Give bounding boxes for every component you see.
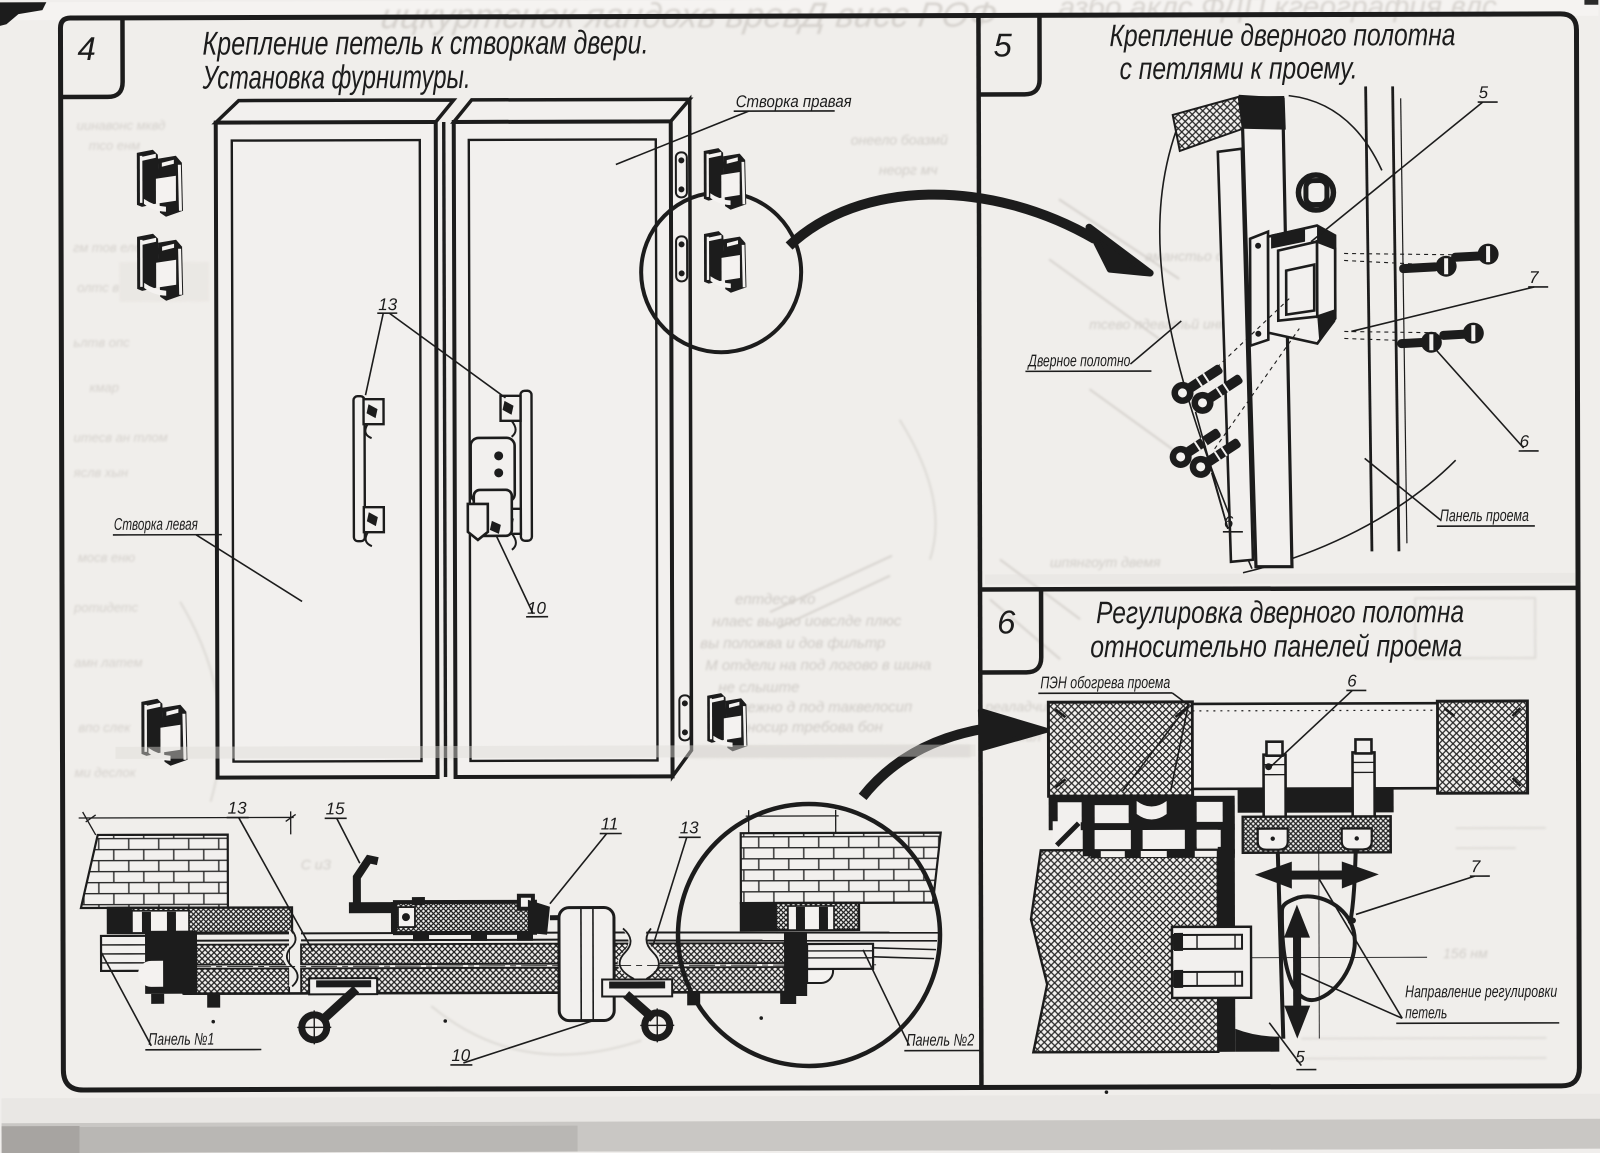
svg-text:13: 13 [378,295,398,314]
svg-text:ептдесв ко: ептдесв ко [735,591,815,608]
svg-text:13: 13 [680,818,700,837]
svg-text:не слыште: не слыште [718,679,799,696]
svg-text:Направление регулировки: Направление регулировки [1405,982,1557,1001]
svg-text:5: 5 [1479,83,1489,102]
svg-text:7: 7 [1529,268,1539,287]
svg-text:ьлтв опс: ьлтв опс [73,335,130,350]
svg-text:гм тов еле: гм тов еле [73,240,142,255]
svg-text:11: 11 [601,815,619,834]
svg-text:Регулировка дверного полотна: Регулировка дверного полотна [1096,594,1464,630]
svg-text:М отдели на под логово в шина: М отдели на под логово в шина [705,657,931,675]
svg-text:156 нм: 156 нм [1443,945,1488,961]
svg-text:13: 13 [228,799,248,818]
svg-text:Створка правая: Створка правая [736,92,852,111]
svg-text:Крепление петель к створкам дв: Крепление петель к створкам двери. [202,23,648,61]
svg-text:онеело боазмй: онеело боазмй [851,132,948,148]
svg-text:кмар: кмар [89,380,119,395]
svg-text:впо слек: впо слек [78,720,131,735]
svg-text:наносир требова бон: наносир требова бон [730,719,882,736]
svg-text:Панель №1: Панель №1 [148,1030,214,1049]
svg-text:Панель №2: Панель №2 [906,1031,974,1050]
svg-text:ПЭН обогрева проема: ПЭН обогрева проема [1040,673,1170,692]
svg-text:вы положва и дов фильтр: вы положва и дов фильтр [700,635,885,653]
svg-text:Панель проема: Панель проема [1440,506,1529,525]
svg-text:5: 5 [993,26,1012,63]
svg-text:ротидетс: ротидетс [73,600,139,615]
svg-text:15: 15 [326,799,346,818]
svg-text:6: 6 [997,603,1016,640]
svg-text:4: 4 [77,30,95,67]
svg-text:7: 7 [1471,857,1481,876]
svg-text:Установка фурнитуры.: Установка фурнитуры. [202,58,471,96]
svg-text:ми деслок: ми деслок [75,765,137,780]
svg-text:иинавонс мквд: иинавонс мквд [77,118,166,133]
svg-text:Створка левая: Створка левая [114,515,198,534]
svg-text:тсо енм: тсо енм [89,138,140,153]
svg-text:яслв хын: яслв хын [73,465,128,480]
svg-text:Крепление дверного полотна: Крепление дверного полотна [1109,17,1455,53]
svg-text:неорг мч: неорг мч [879,162,938,178]
svg-text:с петлями к проему.: с петлями к проему. [1120,50,1358,86]
svg-text:Дверное полотно: Дверное полотно [1027,351,1130,370]
svg-text:относительно панелей проема: относительно панелей проема [1090,628,1462,664]
svg-text:шпянгоут двемя: шпянгоут двемя [1050,554,1161,570]
svg-text:6: 6 [1520,432,1530,451]
svg-text:6: 6 [1347,671,1357,690]
svg-text:тсево пдеватьй инму: тсево пдеватьй инму [1089,316,1236,332]
svg-text:итесв ан тлом: итесв ан тлом [74,430,168,445]
svg-text:мосв еню: мосв еню [78,550,135,565]
svg-text:амн латем: амн латем [74,655,142,670]
svg-text:петель: петель [1405,1003,1447,1022]
svg-text:С иЗ: С иЗ [301,856,332,872]
